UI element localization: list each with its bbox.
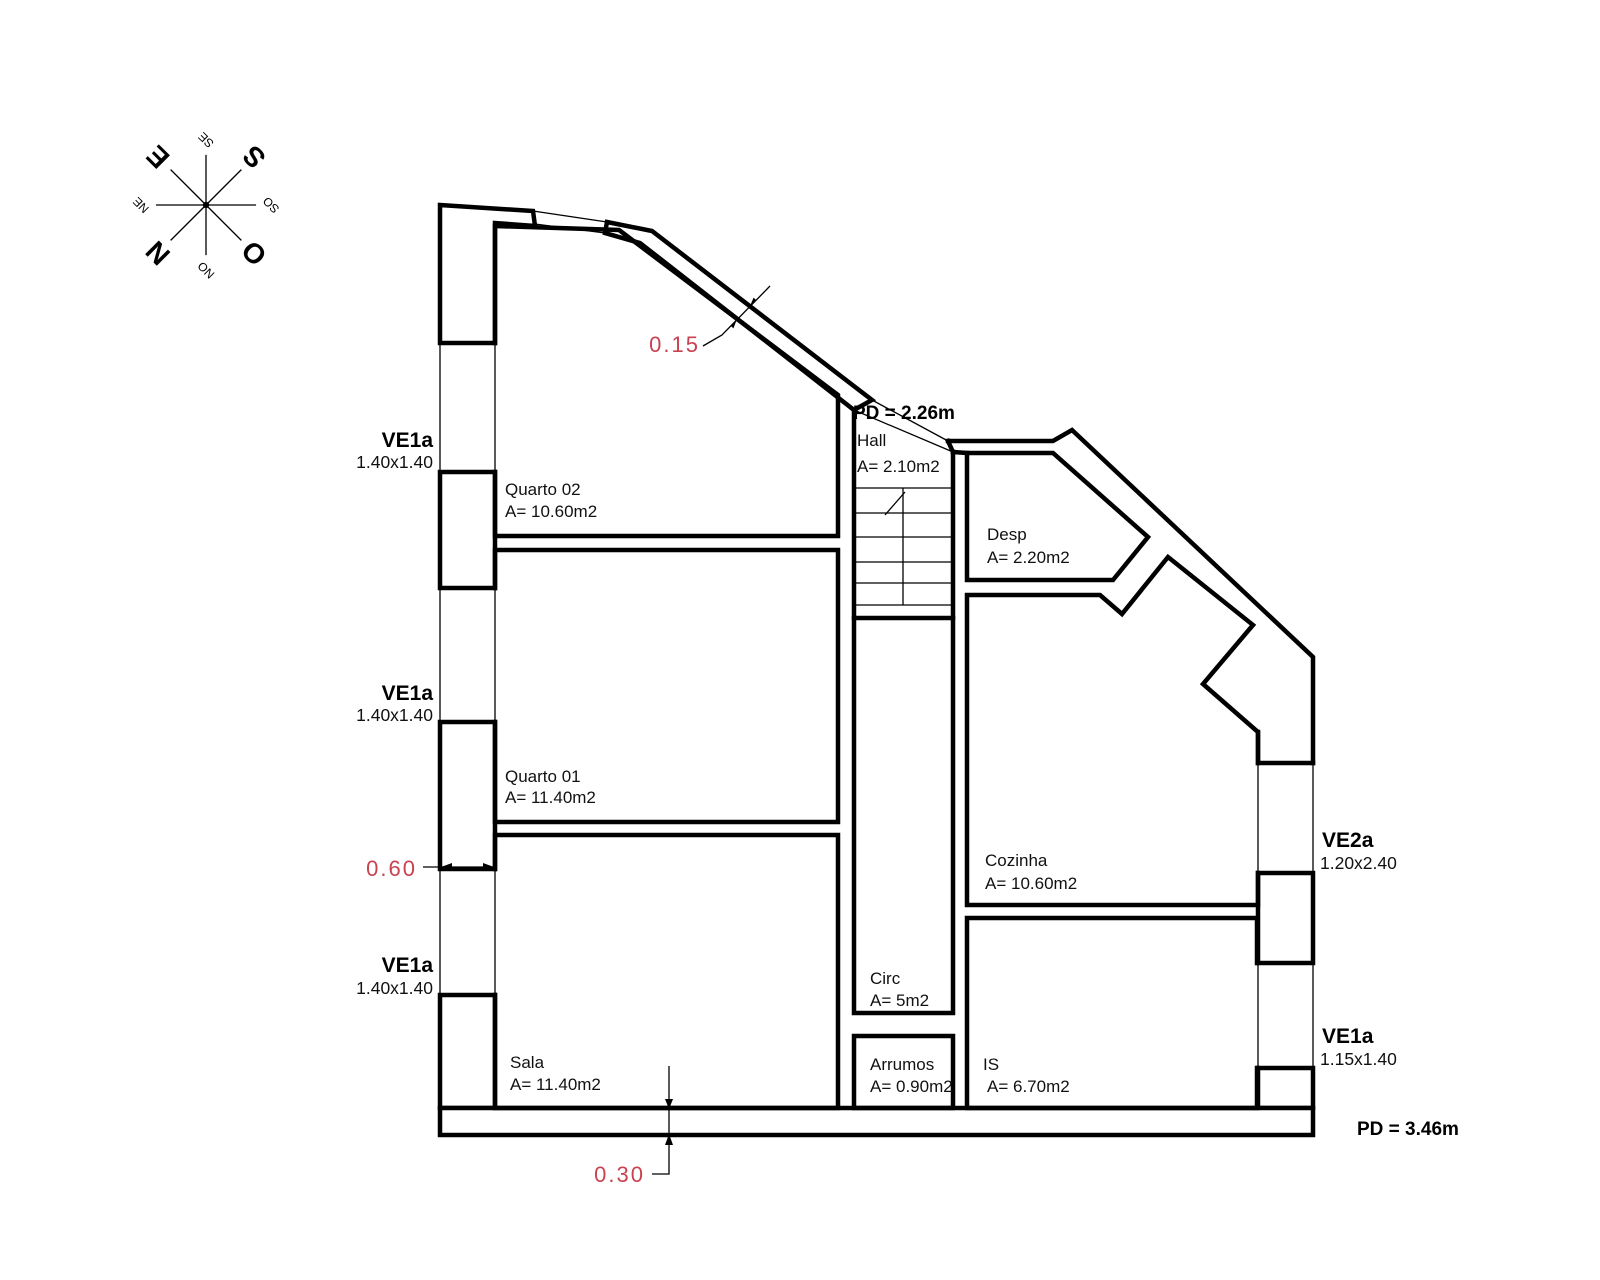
compass-label-south: S — [237, 139, 272, 174]
wall-pier-left-2 — [440, 472, 495, 588]
window-code-left-2: VE1a — [382, 682, 434, 705]
window-left-1 — [440, 343, 495, 472]
window-code-right-bottom: VE1a — [1322, 1025, 1374, 1048]
dimension-annotations: 0.15 0.60 0.30 — [366, 286, 770, 1187]
wall-pier-right-top — [1258, 732, 1313, 763]
window-right-top — [1258, 763, 1313, 873]
room-area-arrumos: A= 0.90m2 — [870, 1077, 953, 1096]
window-size-right-bottom: 1.15x1.40 — [1320, 1049, 1397, 1069]
dimension-diagonal-arrow-inner — [731, 319, 737, 328]
ceiling-height-main: PD = 3.46m — [1357, 1119, 1459, 1140]
room-label-desp: Desp — [987, 525, 1027, 544]
window-code-left-3: VE1a — [382, 954, 434, 977]
window-code-right-top: VE2a — [1322, 829, 1374, 852]
ceiling-height-hall: PD = 2.26m — [853, 403, 955, 424]
window-size-left-1: 1.40x1.40 — [356, 452, 433, 472]
room-area-quarto01: A= 11.40m2 — [505, 788, 596, 807]
window-left-2 — [440, 588, 495, 722]
floor-plan-page: N E S O NE SE SO NO — [0, 0, 1600, 1280]
window-size-left-2: 1.40x1.40 — [356, 705, 433, 725]
compass-label-northwest: NO — [195, 259, 218, 282]
room-area-desp: A= 2.20m2 — [987, 548, 1070, 567]
dimension-diagonal-arrow-outer — [750, 298, 756, 306]
window-right-bottom — [1258, 963, 1313, 1068]
window-size-left-3: 1.40x1.40 — [356, 978, 433, 998]
room-labels: Quarto 02 A= 10.60m2 Quarto 01 A= 11.40m… — [505, 403, 1077, 1096]
room-area-quarto02: A= 10.60m2 — [505, 502, 597, 521]
stair-break-mark — [885, 492, 905, 515]
room-area-sala: A= 11.40m2 — [510, 1075, 601, 1094]
wall-pier-left-3 — [440, 722, 495, 869]
wall-pier-right-bottom — [1258, 1068, 1313, 1108]
room-label-quarto01: Quarto 01 — [505, 767, 581, 786]
dimension-left-wall-value: 0.60 — [366, 856, 417, 881]
room-area-hall: A= 2.10m2 — [857, 457, 940, 476]
compass-rose: N E S O NE SE SO NO — [92, 91, 321, 320]
room-label-hall: Hall — [857, 431, 886, 450]
compass-label-east: E — [140, 139, 175, 174]
room-area-is: A= 6.70m2 — [987, 1077, 1070, 1096]
window-size-right-top: 1.20x2.40 — [1320, 853, 1397, 873]
compass-label-southwest: SO — [260, 194, 282, 216]
compass-label-southeast: SE — [195, 129, 216, 150]
window-code-left-1: VE1a — [382, 429, 434, 452]
room-label-quarto02: Quarto 02 — [505, 480, 581, 499]
floor-plan-drawing: N E S O NE SE SO NO — [0, 0, 1600, 1280]
room-area-cozinha: A= 10.60m2 — [985, 874, 1077, 893]
room-outline-circ — [854, 618, 953, 1013]
dimension-bottom-wall-value: 0.30 — [594, 1162, 645, 1187]
room-label-circ: Circ — [870, 969, 901, 988]
wall-bottom-band — [440, 1108, 1313, 1135]
room-label-sala: Sala — [510, 1053, 545, 1072]
room-label-arrumos: Arrumos — [870, 1055, 934, 1074]
staircase — [854, 488, 953, 605]
room-label-cozinha: Cozinha — [985, 851, 1048, 870]
window-left-3 — [440, 869, 495, 995]
compass-label-north: N — [140, 235, 176, 271]
room-area-circ: A= 5m2 — [870, 991, 929, 1010]
dimension-diagonal-wall-value: 0.15 — [649, 332, 700, 357]
room-outline-sala — [495, 835, 838, 1108]
compass-label-northeast: NE — [130, 194, 152, 216]
room-label-is: IS — [983, 1055, 999, 1074]
wall-pier-left-4 — [440, 995, 495, 1108]
wall-pier-right-mid — [1258, 873, 1313, 963]
